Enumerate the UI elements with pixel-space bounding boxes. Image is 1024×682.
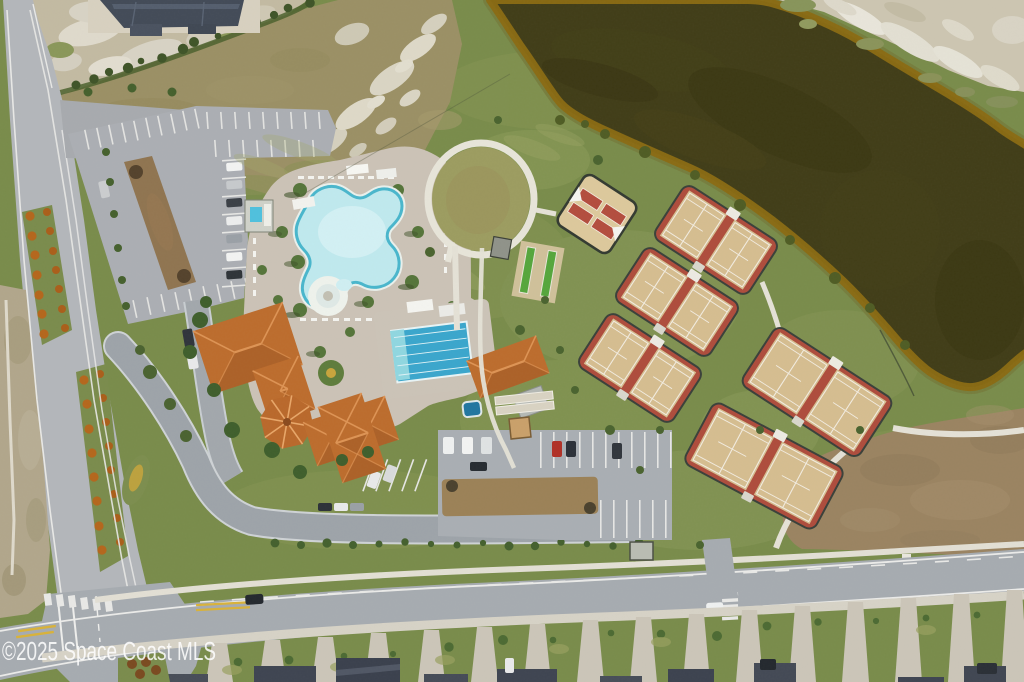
svg-text:©2025 Space Coast MLS: ©2025 Space Coast MLS — [2, 638, 216, 666]
